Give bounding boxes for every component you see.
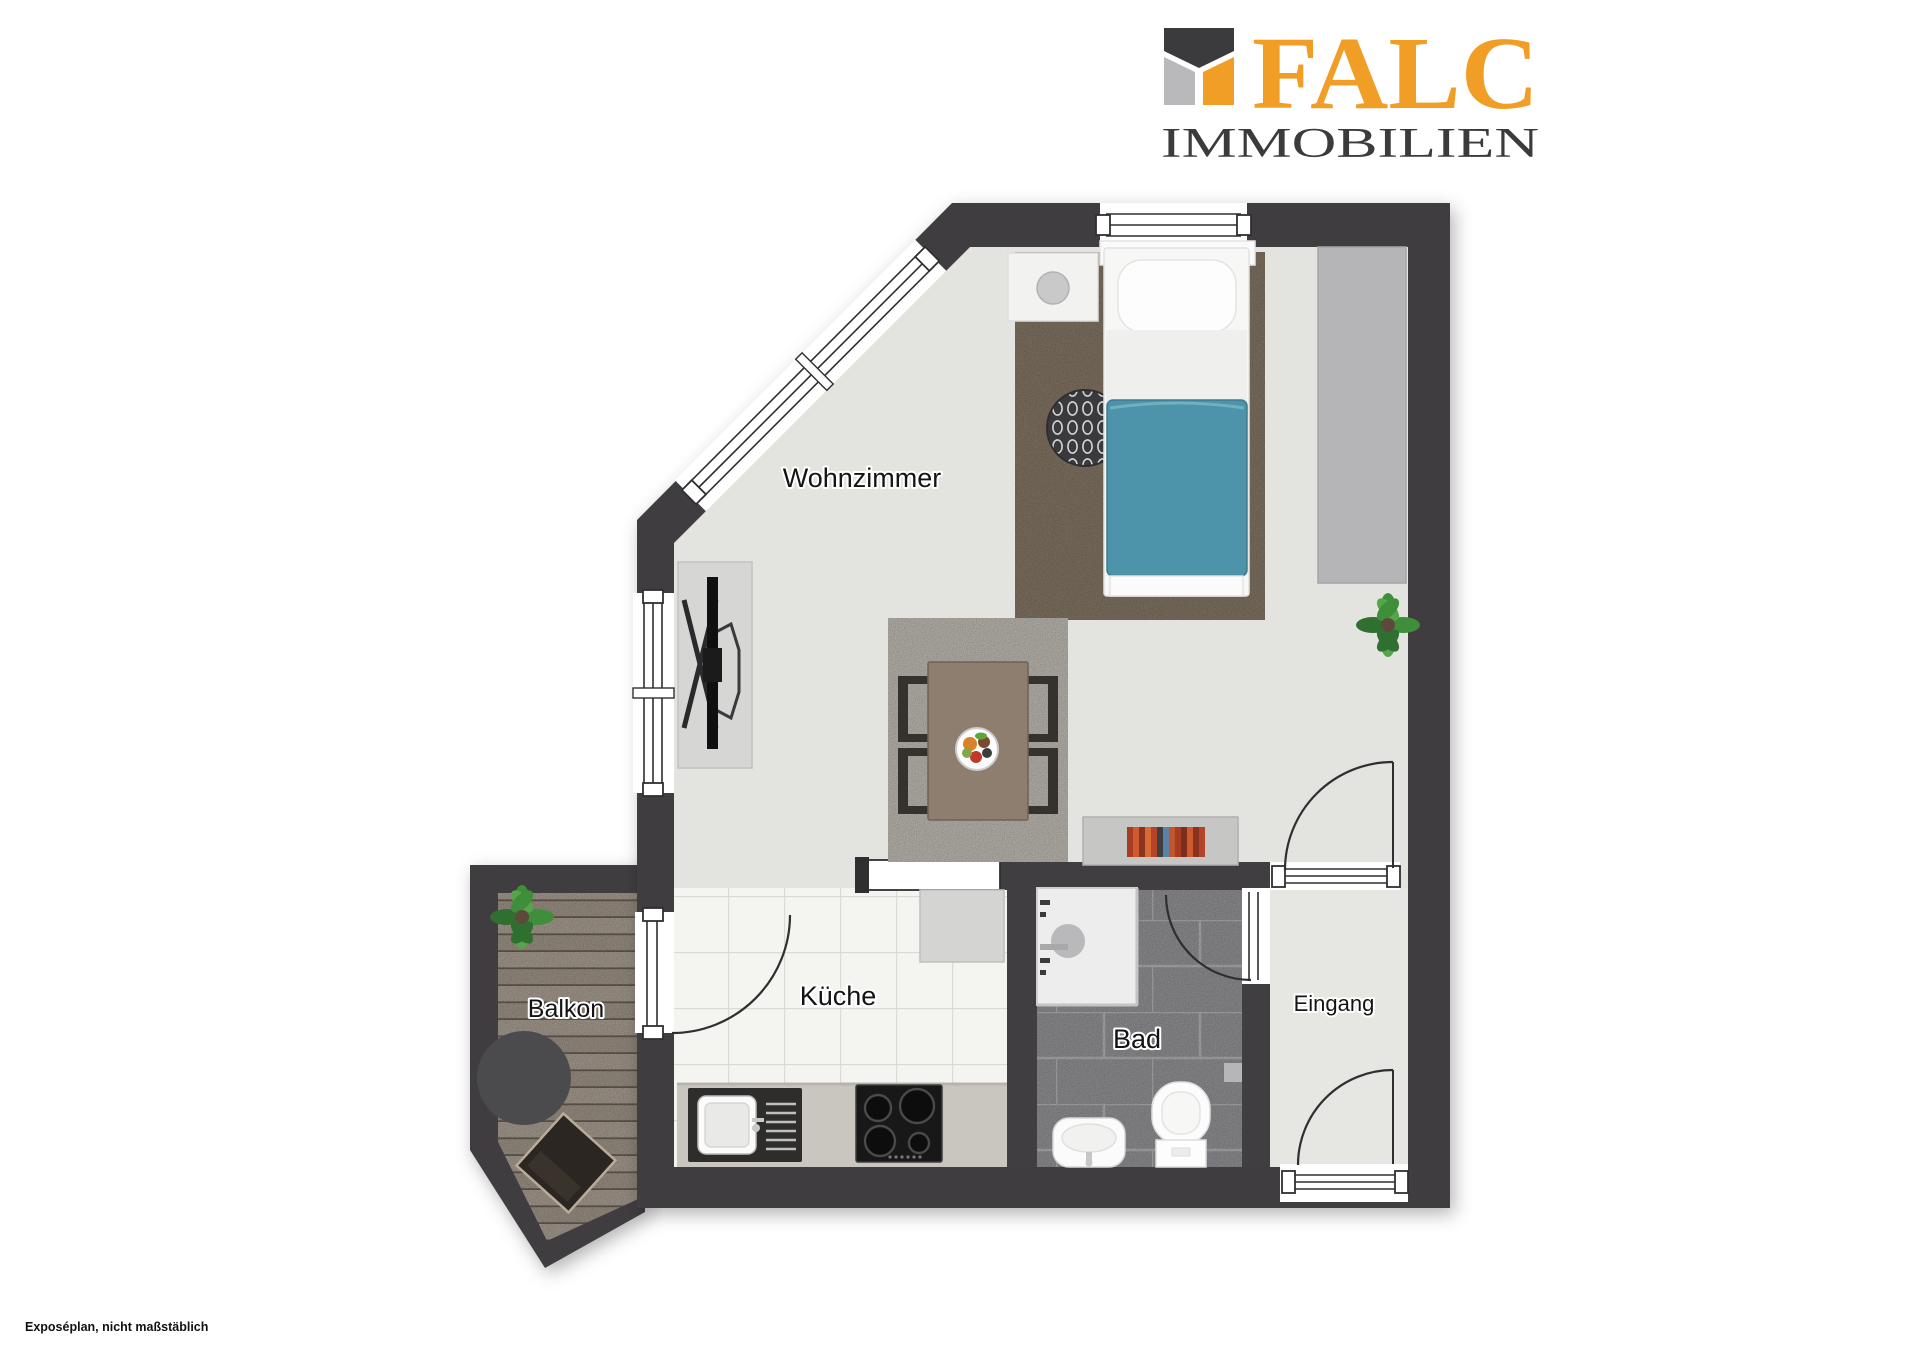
bath-wall-accessory <box>1224 1063 1242 1082</box>
bed-duvet <box>1107 400 1247 576</box>
balcony-table <box>477 1031 571 1125</box>
entry-floor <box>1270 888 1408 1167</box>
brand-logo: FALC IMMOBILIEN <box>1161 16 1539 167</box>
room-label-balcony: Balkon <box>528 995 604 1023</box>
bed <box>1100 241 1255 596</box>
floor-plan-page: Wohnzimmer Küche Bad Eingang Balkon FALC… <box>0 0 1920 1358</box>
bed-sheet <box>1106 330 1247 410</box>
footnote: Exposéplan, nicht maßstäblich <box>25 1320 208 1334</box>
book-spines <box>1127 827 1205 857</box>
fruit-bowl <box>956 728 998 770</box>
sideboard <box>1083 817 1238 865</box>
brand-name: FALC <box>1252 16 1539 131</box>
room-label-kitchen: Küche <box>800 981 877 1011</box>
room-label-entry: Eingang <box>1294 991 1375 1016</box>
balcony <box>470 865 645 1268</box>
kitchen-sink <box>688 1088 802 1162</box>
stove <box>856 1085 942 1162</box>
wall-living-south <box>997 862 1270 890</box>
bed-pillow <box>1118 260 1236 332</box>
toilet <box>1152 1082 1210 1167</box>
door-kitchen-sliding <box>855 857 1000 893</box>
kitchen-appliance <box>920 890 1004 962</box>
brand-logo-icon <box>1164 28 1234 105</box>
window-left <box>633 590 674 796</box>
wall-kitchen-bath <box>1007 862 1037 1167</box>
floor-plan-canvas: Wohnzimmer Küche Bad Eingang Balkon FALC… <box>0 0 1920 1358</box>
room-label-bath: Bad <box>1113 1024 1161 1054</box>
washbasin <box>1053 1118 1125 1167</box>
shower <box>1037 888 1137 1005</box>
shower-head <box>1051 924 1085 958</box>
tv-board <box>678 562 752 768</box>
wardrobe <box>1318 247 1406 583</box>
room-label-living: Wohnzimmer <box>783 463 942 493</box>
brand-subtitle: IMMOBILIEN <box>1161 121 1539 167</box>
nightstand <box>1008 253 1098 321</box>
